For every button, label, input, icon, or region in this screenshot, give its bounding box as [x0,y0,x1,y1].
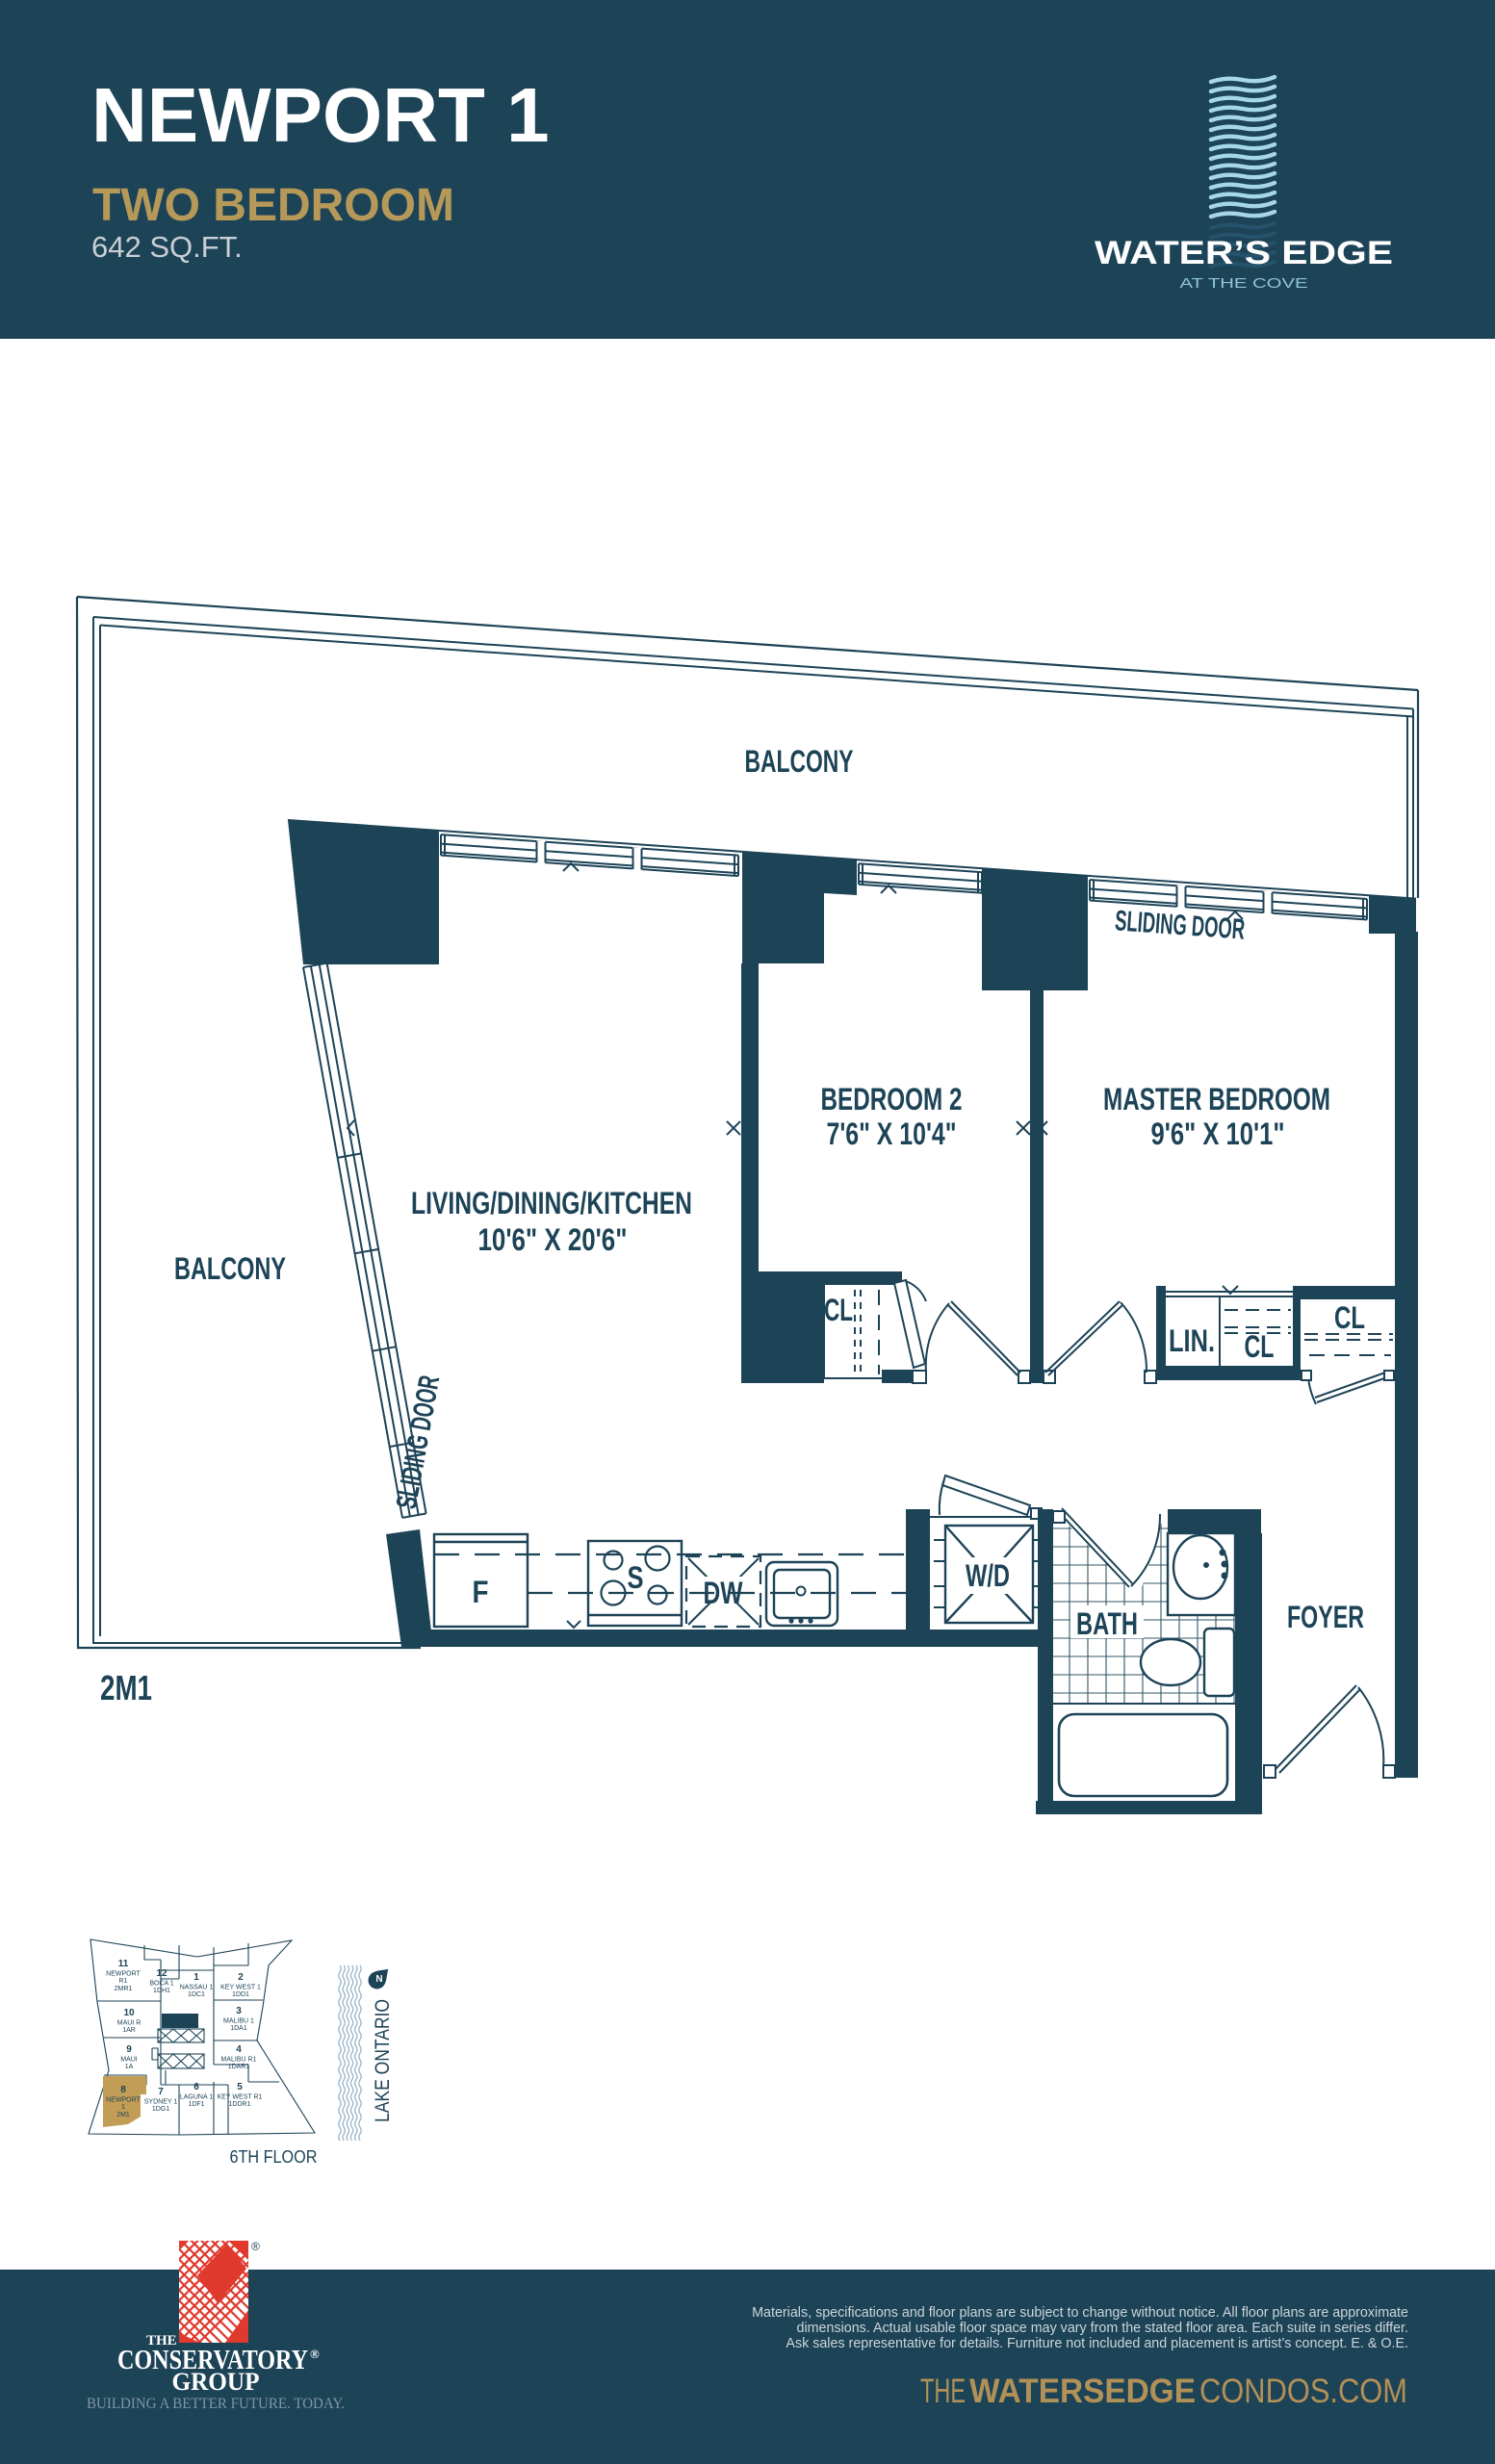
svg-text:5: 5 [237,2082,243,2092]
svg-text:1DDR1: 1DDR1 [229,2101,251,2108]
svg-text:NEWPORT: NEWPORT [106,1971,141,1978]
svg-text:N: N [375,1974,382,1985]
svg-text:®: ® [251,2240,260,2253]
svg-text:NEWPORT: NEWPORT [106,2097,141,2104]
svg-text:CL: CL [1245,1329,1275,1364]
svg-text:BOCA 1: BOCA 1 [149,1981,173,1988]
svg-text:SLIDING DOOR: SLIDING DOOR [1114,905,1246,945]
svg-text:2MR1: 2MR1 [115,1986,133,1992]
svg-text:BALCONY: BALCONY [174,1251,286,1286]
svg-text:12: 12 [156,1968,168,1979]
svg-text:1: 1 [121,2104,125,2111]
svg-text:1DAR1: 1DAR1 [228,2064,250,2070]
svg-text:6: 6 [193,2082,199,2092]
svg-text:MALIBU R1: MALIBU R1 [221,2057,257,2064]
svg-text:1DC1: 1DC1 [188,1991,205,1998]
svg-text:LAKE ONTARIO: LAKE ONTARIO [372,1999,394,2122]
svg-text:3: 3 [236,2006,242,2016]
svg-text:11: 11 [118,1959,129,1969]
svg-text:CL: CL [1334,1300,1365,1335]
svg-text:LAGUNA 1: LAGUNA 1 [180,2094,213,2101]
svg-text:10'6" X 20'6": 10'6" X 20'6" [478,1222,628,1257]
svg-text:KEY WEST R1: KEY WEST R1 [218,2094,263,2101]
svg-text:BALCONY: BALCONY [745,744,854,779]
svg-text:2M1: 2M1 [100,1668,152,1707]
svg-text:1DG1: 1DG1 [152,2106,169,2113]
svg-text:MAUI: MAUI [120,2057,138,2064]
svg-text:BATH: BATH [1076,1606,1138,1641]
svg-text:1DA1: 1DA1 [230,2025,247,2032]
svg-text:F: F [473,1575,489,1609]
svg-text:1DD1: 1DD1 [232,1991,249,1998]
svg-text:10: 10 [123,2008,135,2018]
svg-text:2: 2 [238,1972,244,1983]
svg-text:NASSAU 1: NASSAU 1 [180,1985,214,1991]
svg-text:1AR: 1AR [122,2027,136,2034]
svg-text:7: 7 [158,2087,164,2097]
svg-text:9: 9 [126,2044,132,2055]
svg-text:MASTER BEDROOM: MASTER BEDROOM [1103,1082,1330,1116]
svg-text:THEWATERSEDGECONDOS.COM: THEWATERSEDGECONDOS.COM [920,2373,1407,2410]
svg-text:1: 1 [193,1972,199,1983]
svg-text:BEDROOM 2: BEDROOM 2 [821,1082,963,1116]
svg-text:SYDNEY 1: SYDNEY 1 [144,2099,178,2106]
svg-text:7'6" X 10'4": 7'6" X 10'4" [827,1116,957,1151]
svg-text:6TH FLOOR: 6TH FLOOR [230,2147,318,2167]
svg-text:S: S [628,1560,644,1595]
svg-text:CL: CL [824,1293,853,1327]
svg-text:W/D: W/D [966,1558,1010,1593]
svg-text:MAUI R: MAUI R [117,2020,142,2027]
svg-text:SLIDING DOOR: SLIDING DOOR [391,1373,447,1511]
svg-text:9'6" X 10'1": 9'6" X 10'1" [1151,1116,1285,1151]
svg-text:FOYER: FOYER [1287,1600,1364,1634]
svg-text:2M1: 2M1 [116,2112,130,2118]
svg-text:1DH1: 1DH1 [153,1988,170,1994]
svg-text:LIVING/DINING/KITCHEN: LIVING/DINING/KITCHEN [411,1186,692,1220]
svg-text:LIN.: LIN. [1169,1323,1215,1358]
svg-text:1DF1: 1DF1 [188,2101,204,2108]
svg-text:R1: R1 [119,1978,128,1985]
svg-text:KEY WEST 1: KEY WEST 1 [220,1985,261,1991]
svg-text:4: 4 [236,2044,242,2055]
svg-text:1A: 1A [125,2064,134,2070]
svg-text:MALIBU 1: MALIBU 1 [223,2018,254,2025]
svg-text:8: 8 [120,2085,126,2095]
